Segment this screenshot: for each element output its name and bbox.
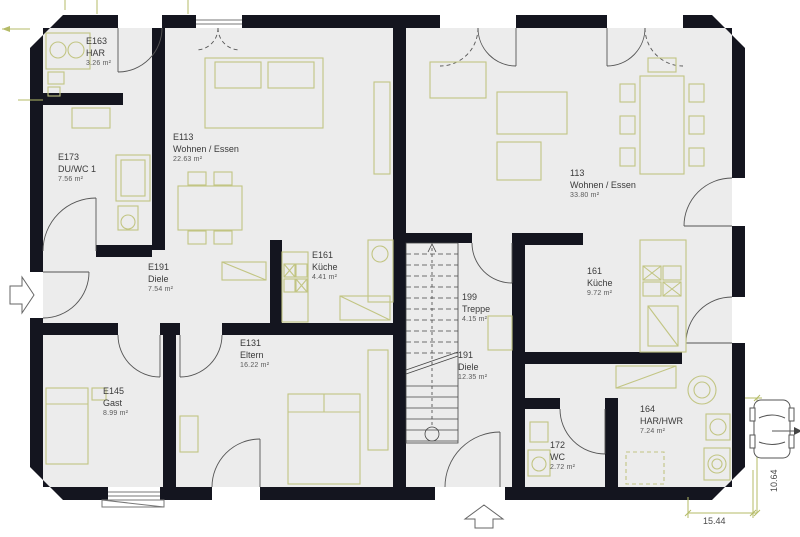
room-label-wohnen-essen-left: E113Wohnen / Essen22.63 m² [173,132,239,164]
room-label-har-hwr: 164HAR/HWR7.24 m² [640,404,683,436]
room-label-kueche-left: E161Küche4.41 m² [312,250,338,282]
car-icon [750,400,800,458]
floorplan-drawing [0,0,800,537]
room-label-wohnen-essen-right: 113Wohnen / Essen33.80 m² [570,168,636,200]
room-label-diele-right: 191Diele12.35 m² [458,350,487,382]
entrance-arrow-bottom-icon [465,505,503,528]
room-label-har: E163HAR3.26 m² [86,36,111,68]
room-label-treppe: 199Treppe4.15 m² [462,292,490,324]
dimension-height-label: 10.64 [769,469,779,492]
window-sill [102,500,164,507]
dimension-width-label: 15.44 [703,516,726,526]
room-label-diele-left: E191Diele7.54 m² [148,262,173,294]
room-label-wc: 172WC2.72 m² [550,440,575,472]
room-label-gast: E145Gast8.99 m² [103,386,128,418]
room-label-eltern: E131Eltern16.22 m² [240,338,269,370]
floorplan-page: E163HAR3.26 m² E173DU/WC 17.56 m² E113Wo… [0,0,800,537]
room-label-kueche-right: 161Küche9.72 m² [587,266,613,298]
room-label-duwc1: E173DU/WC 17.56 m² [58,152,96,184]
